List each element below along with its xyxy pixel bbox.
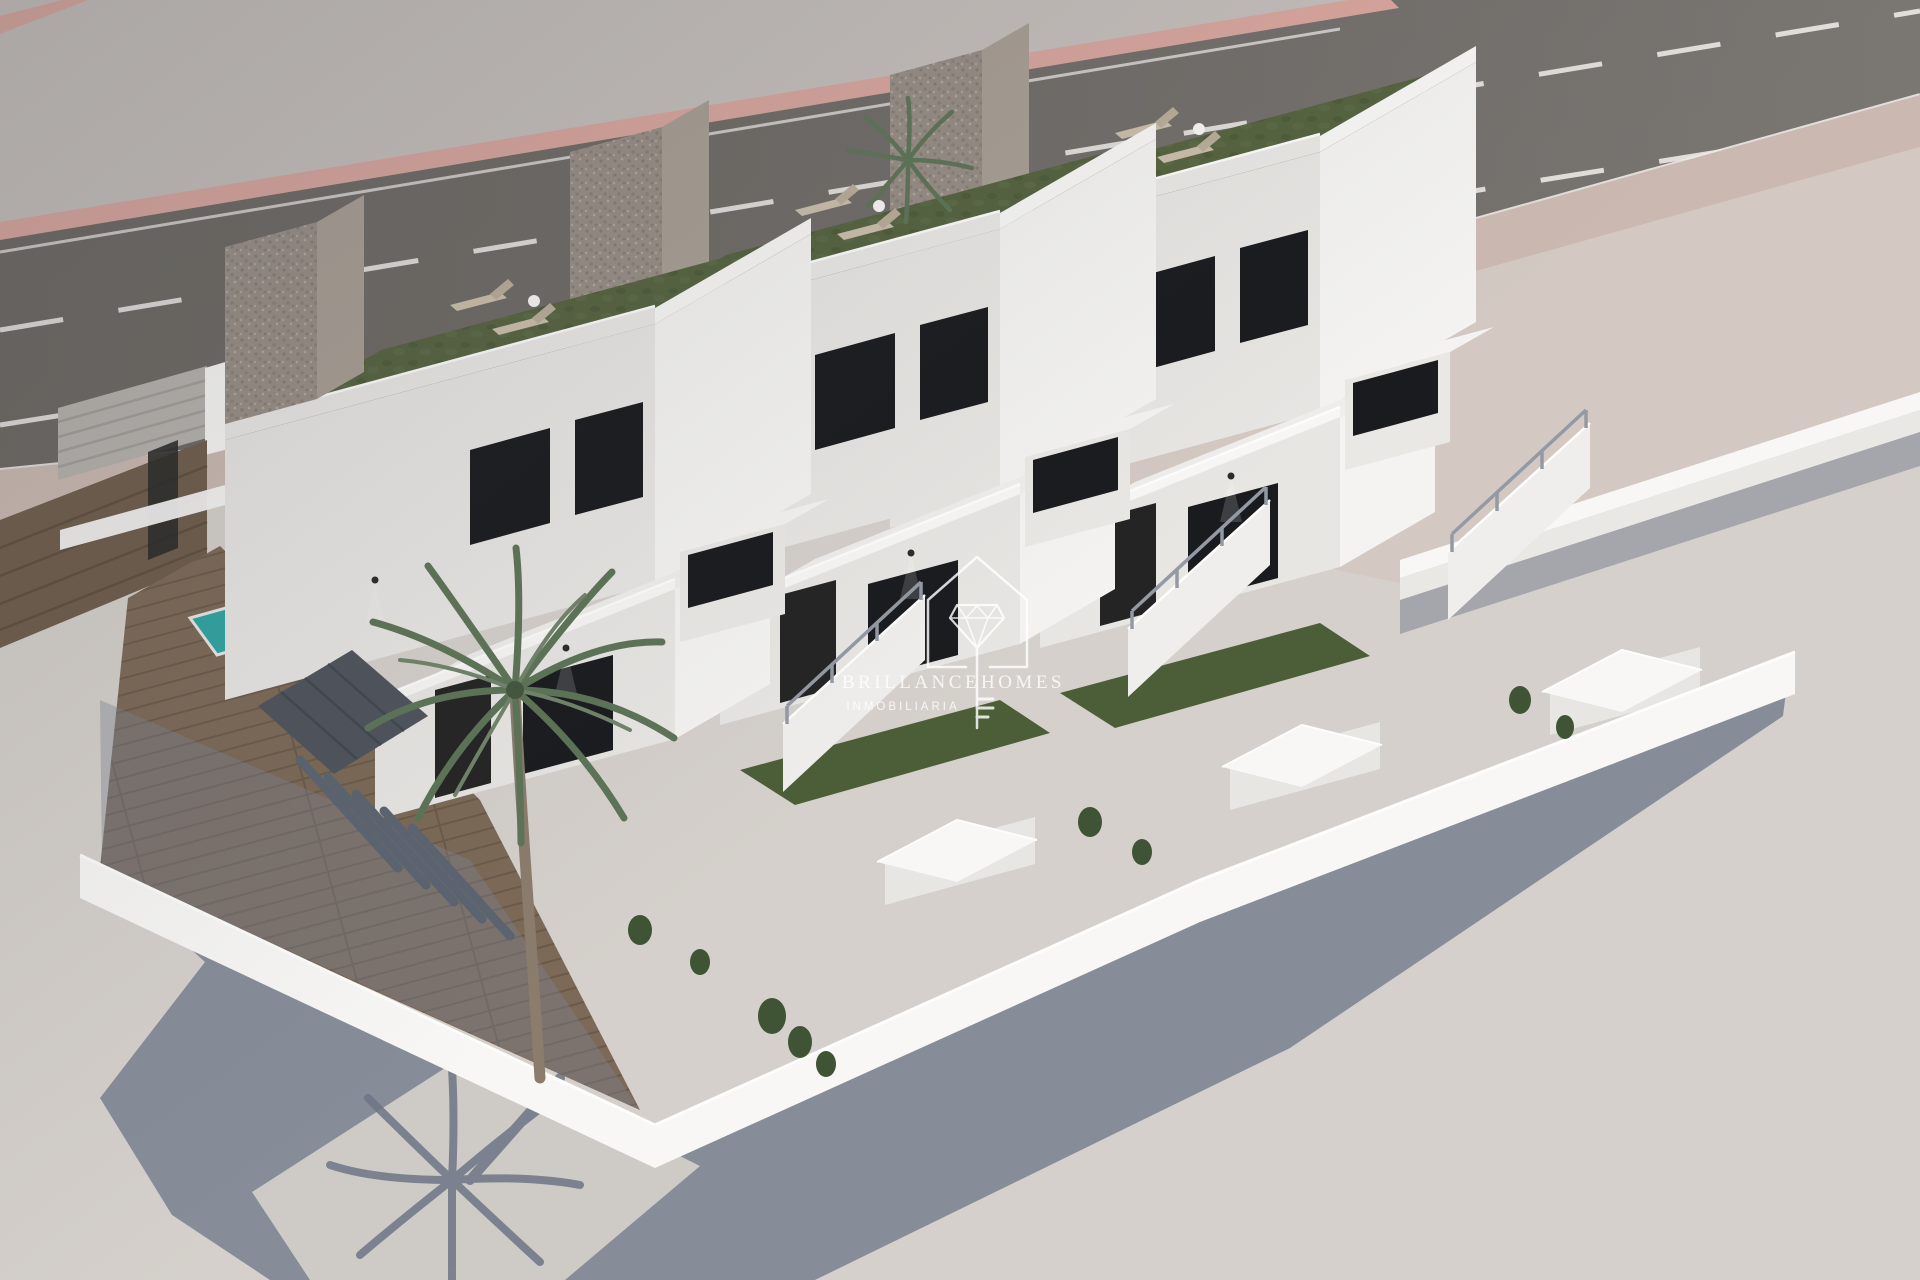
scene: BRILLANCE HOMES INMOBILIARIA	[0, 0, 1920, 1280]
vignette	[0, 0, 1920, 1280]
watermark-brand-right: HOMES	[981, 672, 1065, 693]
render-image: BRILLANCE HOMES INMOBILIARIA	[0, 0, 1920, 1280]
watermark-subtitle: INMOBILIARIA	[846, 701, 959, 713]
watermark-brand-left: BRILLANCE	[842, 672, 980, 693]
